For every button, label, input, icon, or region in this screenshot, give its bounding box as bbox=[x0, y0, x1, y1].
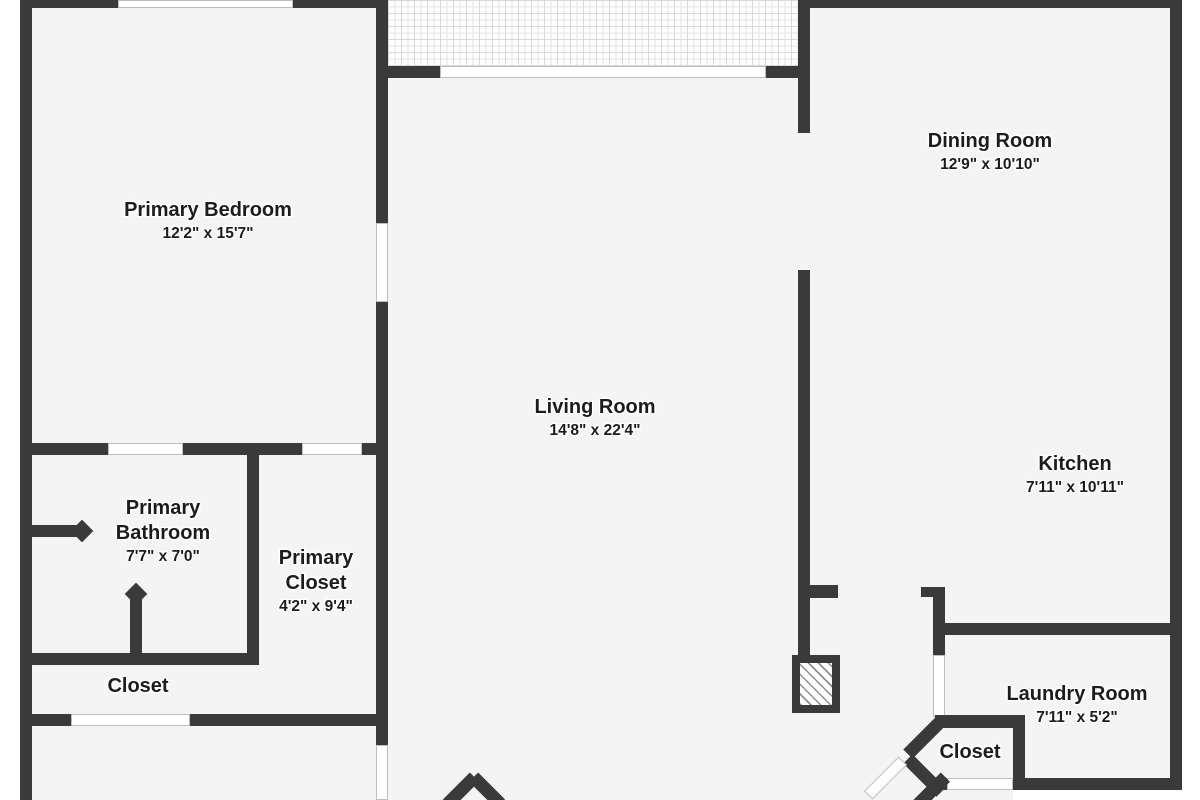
room-dimensions: 12'9" x 10'10" bbox=[928, 154, 1052, 176]
door-laundry bbox=[933, 655, 945, 717]
floor-plan: Primary Bedroom 12'2" x 15'7" Dining Roo… bbox=[0, 0, 1200, 800]
wall-bedroom-bottom-a bbox=[20, 443, 108, 455]
door-bedroom bbox=[376, 223, 388, 302]
wall-porch-bottom-left bbox=[376, 66, 440, 78]
fireplace-icon bbox=[792, 655, 840, 713]
room-name: Dining Room bbox=[928, 129, 1052, 154]
room-name: Closet bbox=[107, 674, 168, 699]
wall-laundry-closet-right bbox=[1013, 728, 1025, 778]
wall-bedroom-living-lower bbox=[376, 302, 388, 745]
room-name: Closet bbox=[939, 740, 1000, 765]
door-primary-bathroom bbox=[108, 443, 183, 455]
wall-bathroom-closet-divider bbox=[247, 455, 259, 665]
room-label-living-room: Living Room 14'8" x 22'4" bbox=[534, 395, 655, 442]
door-hallway-bottom bbox=[376, 745, 388, 800]
window-closet-bottom bbox=[71, 714, 190, 726]
door-laundry-closet bbox=[947, 778, 1013, 790]
wall-bedroom-bottom-b bbox=[183, 443, 302, 455]
wall-closet-top bbox=[20, 653, 259, 665]
room-dimensions: 7'11" x 5'2" bbox=[1006, 707, 1147, 729]
room-name: Primary Bedroom bbox=[124, 198, 292, 223]
room-label-kitchen: Kitchen 7'11" x 10'11" bbox=[1026, 452, 1124, 499]
wall-top-dining bbox=[798, 0, 1182, 8]
room-dimensions: 14'8" x 22'4" bbox=[534, 420, 655, 442]
wall-bedroom-living-upper bbox=[376, 78, 388, 223]
wall-porch-bottom-right bbox=[766, 66, 810, 78]
wall-laundry-bottom bbox=[1013, 778, 1182, 790]
wall-living-dining-main bbox=[798, 270, 810, 655]
wall-kitchen-stub bbox=[810, 585, 838, 598]
room-label-laundry-closet: Closet bbox=[939, 740, 1000, 765]
room-dimensions: 12'2" x 15'7" bbox=[124, 223, 292, 245]
room-label-closet: Closet bbox=[107, 674, 168, 699]
sliding-door-porch bbox=[440, 66, 766, 78]
room-label-primary-bedroom: Primary Bedroom 12'2" x 15'7" bbox=[124, 198, 292, 245]
wall-bedroom-bottom-c bbox=[362, 443, 388, 455]
room-label-dining-room: Dining Room 12'9" x 10'10" bbox=[928, 129, 1052, 176]
room-label-primary-bathroom: Primary Bathroom 7'7" x 7'0" bbox=[96, 496, 231, 568]
room-label-primary-closet: Primary Closet 4'2" x 9'4" bbox=[261, 546, 371, 618]
wall-left-exterior bbox=[20, 0, 32, 800]
wall-right-exterior bbox=[1170, 0, 1182, 790]
door-primary-closet bbox=[302, 443, 362, 455]
room-dimensions: 7'7" x 7'0" bbox=[96, 546, 231, 568]
room-name: Primary Closet bbox=[261, 546, 371, 596]
fireplace-hatch bbox=[800, 663, 832, 705]
wall-bottom-left-a bbox=[20, 714, 71, 726]
wall-laundry-top bbox=[933, 623, 1182, 635]
wall-living-dining-upper bbox=[798, 78, 810, 133]
porch-tile-pattern bbox=[388, 0, 798, 66]
room-name: Primary Bathroom bbox=[96, 496, 231, 546]
room-name: Living Room bbox=[534, 395, 655, 420]
wall-kitchen-left-hook bbox=[921, 587, 933, 597]
room-label-laundry-room: Laundry Room 7'11" x 5'2" bbox=[1006, 682, 1147, 729]
room-dimensions: 4'2" x 9'4" bbox=[261, 596, 371, 618]
room-name: Kitchen bbox=[1026, 452, 1124, 477]
exterior-mask bbox=[1013, 790, 1200, 800]
wall-bottom-left-b bbox=[190, 714, 388, 726]
room-dimensions: 7'11" x 10'11" bbox=[1026, 477, 1124, 499]
room-name: Laundry Room bbox=[1006, 682, 1147, 707]
wall-kitchen-left bbox=[933, 587, 945, 655]
window-bedroom-top bbox=[118, 0, 293, 8]
